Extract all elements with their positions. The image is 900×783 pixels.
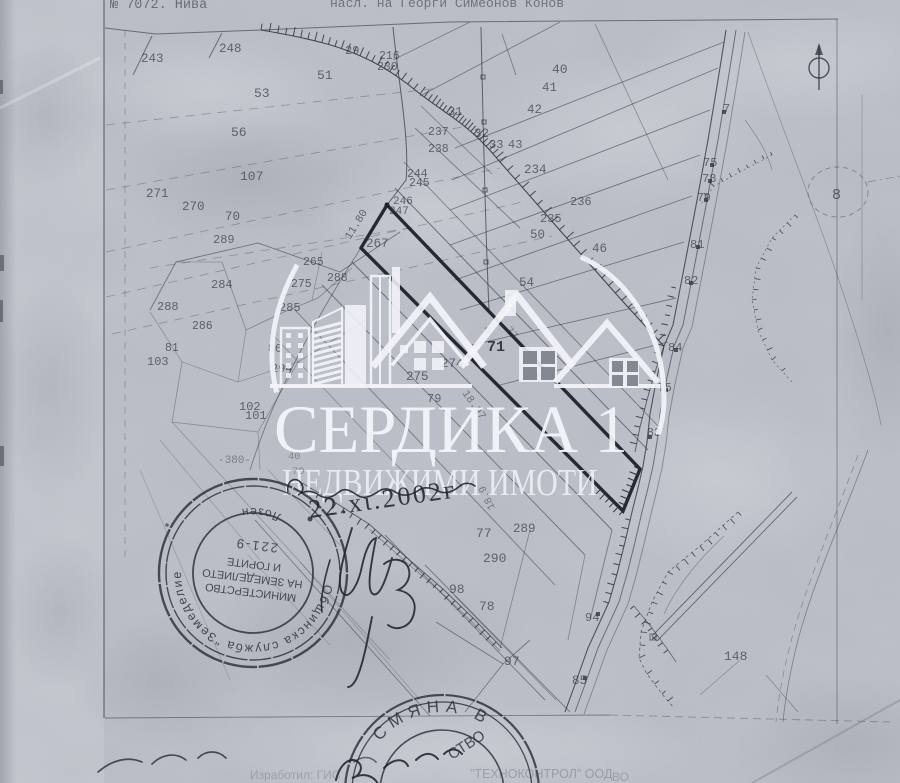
svg-text:237: 237 [428,126,449,139]
svg-text:243: 243 [141,52,164,66]
svg-text:81: 81 [690,238,704,252]
svg-text:98: 98 [449,582,465,597]
svg-text:насл. на Георги Симеонов Конов: насл. на Георги Симеонов Конов [330,0,564,11]
svg-text:230: 230 [377,61,398,74]
svg-text:148: 148 [724,649,747,664]
svg-text:85: 85 [572,674,587,688]
svg-text:СЕРДИКА 1: СЕРДИКА 1 [274,391,628,467]
svg-text:29: 29 [345,44,359,58]
svg-text:42: 42 [527,103,542,117]
svg-text:247: 247 [389,206,409,218]
svg-text:284: 284 [211,278,233,292]
svg-text:43: 43 [508,138,522,152]
svg-text:289: 289 [513,522,536,536]
svg-text:71: 71 [487,339,505,356]
svg-text:50: 50 [530,228,545,242]
svg-text:235: 235 [540,212,562,226]
svg-text:№ 7072. Нива: № 7072. Нива [110,0,207,13]
svg-text:234: 234 [524,163,547,177]
svg-text:82: 82 [684,274,698,288]
svg-text:7: 7 [723,102,730,116]
svg-text:78: 78 [702,172,716,186]
svg-text:-380-: -380- [218,455,251,467]
svg-text:275: 275 [291,278,312,291]
svg-text:40: 40 [552,62,568,77]
svg-text:54: 54 [519,276,534,290]
svg-text:51: 51 [317,68,333,83]
svg-text:94: 94 [585,611,599,625]
svg-text:101: 101 [245,409,267,423]
svg-text:289: 289 [213,233,235,247]
svg-text:53: 53 [254,86,270,101]
svg-text:"ТЕХНОКОНТРОЛ" ООД: "ТЕХНОКОНТРОЛ" ООД [470,767,613,781]
svg-text:ВО: ВО [612,770,629,783]
svg-text:290: 290 [483,551,506,566]
svg-text:32: 32 [474,127,489,141]
svg-text:270: 270 [182,200,205,214]
svg-text:271: 271 [146,187,169,201]
svg-text:31: 31 [448,105,462,119]
svg-text:97: 97 [504,654,520,669]
svg-text:81: 81 [165,342,179,355]
svg-text:8: 8 [832,187,841,204]
svg-text:56: 56 [231,125,247,140]
svg-text:75: 75 [703,156,717,170]
svg-text:77: 77 [476,526,492,541]
svg-text:238: 238 [428,143,449,156]
svg-text:103: 103 [147,355,169,369]
svg-text:33: 33 [489,138,503,152]
svg-text:41: 41 [542,81,557,95]
svg-text:245: 245 [409,177,430,190]
svg-text:236: 236 [570,195,592,209]
svg-text:265: 265 [303,256,324,269]
svg-text:288: 288 [327,272,348,285]
svg-text:46: 46 [592,242,607,256]
svg-text:286: 286 [192,320,213,333]
svg-text:107: 107 [240,169,263,184]
svg-text:70: 70 [225,210,240,224]
svg-text:248: 248 [219,42,242,56]
svg-text:267: 267 [366,237,389,251]
svg-text:78: 78 [479,599,495,614]
svg-text:288: 288 [157,300,179,314]
svg-text:275: 275 [406,370,429,384]
svg-text:84: 84 [668,341,682,355]
svg-text:Изработил: ГИС: Изработил: ГИС [250,768,341,782]
svg-text:79: 79 [697,192,711,205]
